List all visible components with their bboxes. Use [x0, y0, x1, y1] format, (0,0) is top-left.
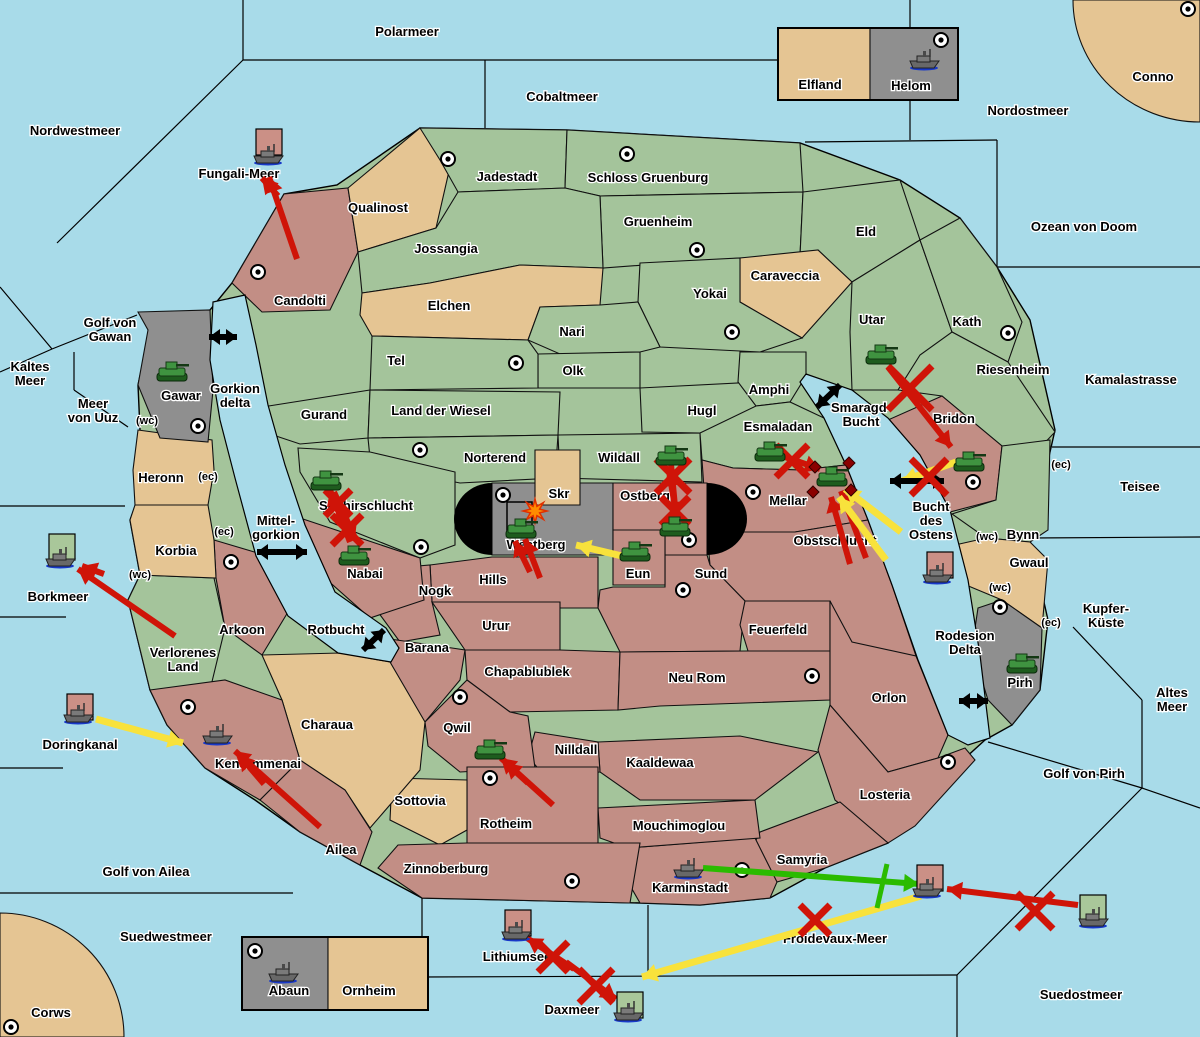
province-label-ailea: Ailea: [325, 842, 357, 857]
sea-label-suedostmeer: Suedostmeer: [1040, 987, 1122, 1002]
province-label-sund: Sund: [695, 566, 728, 581]
province-label-yokai: Yokai: [693, 286, 727, 301]
supply-center-tel: [509, 356, 523, 370]
province-label-corws: Corws: [31, 1005, 71, 1020]
supply-center-zinnoberburg: [565, 874, 579, 888]
fleet-unit-borkmeer[interactable]: [46, 534, 75, 569]
sea-label-daxmeer: Daxmeer: [545, 1002, 600, 1017]
sea-label-golf-von-gawan: Golf vonGawan: [84, 315, 137, 344]
province-label-samyria: Samyria: [777, 852, 828, 867]
supply-center-bridon: [966, 475, 980, 489]
fleet-unit-fungali-meer[interactable]: [254, 129, 283, 166]
supply-center-candolti: [251, 265, 265, 279]
province-label-land-der-wiesel: Land der Wiesel: [391, 403, 491, 418]
supply-center-yokai: [725, 325, 739, 339]
province-label-arkoon: Arkoon: [219, 622, 265, 637]
supply-center-mellar: [746, 485, 760, 499]
supply-center-qwil: [453, 690, 467, 704]
province-label-amphi: Amphi: [749, 382, 789, 397]
province-label-nilldall: Nilldall: [555, 742, 598, 757]
province-label-heronn: Heronn: [138, 470, 184, 485]
province-label-esmaladan: Esmaladan: [744, 419, 813, 434]
supply-center-rotheim: [483, 771, 497, 785]
sea-label-golf-von-pirh: Golf von Pirh: [1043, 766, 1125, 781]
province-nari[interactable]: [528, 302, 660, 354]
supply-center-saphirschlucht: [414, 540, 428, 554]
province-label-zinnoberburg: Zinnoberburg: [404, 861, 489, 876]
province-label-feuerfeld: Feuerfeld: [749, 622, 808, 637]
province-label-jossangia: Jossangia: [414, 241, 478, 256]
supply-center-pirh: [993, 600, 1007, 614]
supply-center-conno: [1181, 2, 1195, 16]
province-label-tel: Tel: [387, 353, 405, 368]
province-label-mellar: Mellar: [769, 493, 807, 508]
province-label-bynn: Bynn: [1007, 527, 1040, 542]
sea-label-altes-meer: AltesMeer: [1156, 685, 1188, 714]
sea-label-kupfer-kueste: Kupfer-Küste: [1083, 601, 1129, 630]
sea-label-rotbucht: Rotbucht: [307, 622, 365, 637]
province-label-eun: Eun: [626, 566, 651, 581]
game-map-root: PolarmeerNordwestmeerCobaltmeerNordostme…: [0, 0, 1200, 1037]
province-label-ornheim: Ornheim: [342, 983, 395, 998]
coast-marker: (ec): [1041, 617, 1061, 629]
sea-label-suedwestmeer: Suedwestmeer: [120, 929, 212, 944]
province-olk[interactable]: [538, 352, 640, 388]
province-label-elfland: Elfland: [798, 77, 841, 92]
province-label-olk: Olk: [563, 363, 585, 378]
province-label-urur: Urur: [482, 618, 509, 633]
sea-label-lithiumsee: Lithiumsee: [483, 949, 552, 964]
province-label-neu-rom: Neu Rom: [668, 670, 725, 685]
province-label-caraveccia: Caraveccia: [751, 268, 820, 283]
province-ornheim[interactable]: [328, 937, 428, 1010]
sea-label-doringkanal: Doringkanal: [42, 737, 117, 752]
supply-center-norterend: [413, 443, 427, 457]
sea-label-ozean-von-doom: Ozean von Doom: [1031, 219, 1137, 234]
supply-center-arkoon: [224, 555, 238, 569]
province-label-barana: Barana: [405, 640, 450, 655]
province-label-mouchimoglou: Mouchimoglou: [633, 818, 725, 833]
coast-marker: (ec): [198, 471, 218, 483]
province-label-gwaul: Gwaul: [1009, 555, 1048, 570]
coast-marker: (wc): [989, 582, 1011, 594]
province-label-nogk: Nogk: [419, 583, 452, 598]
province-label-charaua: Charaua: [301, 717, 354, 732]
explosion-marker: [523, 499, 547, 523]
supply-center-kentommenai: [181, 700, 195, 714]
supply-center-schloss-gruenburg: [620, 147, 634, 161]
sea-label-teisee: Teisee: [1120, 479, 1160, 494]
supply-center-jadestadt: [441, 152, 455, 166]
supply-center-helom: [934, 33, 948, 47]
province-label-sottovia: Sottovia: [394, 793, 446, 808]
province-label-helom: Helom: [891, 78, 931, 93]
supply-center-kath: [1001, 326, 1015, 340]
fleet-unit-daxmeer[interactable]: [614, 992, 643, 1023]
supply-center-westberg: [496, 488, 510, 502]
province-label-kaaldewaa: Kaaldewaa: [626, 755, 694, 770]
coast-marker: (wc): [976, 531, 998, 543]
province-label-chapablublek: Chapablublek: [484, 664, 570, 679]
province-label-conno: Conno: [1132, 69, 1173, 84]
fleet-unit-bucht-des-ostens[interactable]: [923, 552, 953, 585]
sea-label-kamalastrasse: Kamalastrasse: [1085, 372, 1177, 387]
sea-label-nordostmeer: Nordostmeer: [988, 103, 1069, 118]
province-label-karminstadt: Karminstadt: [652, 880, 729, 895]
province-label-gurand: Gurand: [301, 407, 347, 422]
fleet-unit-froidevaux-meer[interactable]: [913, 865, 943, 899]
map-canvas: PolarmeerNordwestmeerCobaltmeerNordostme…: [0, 0, 1200, 1037]
sea-label-borkmeer: Borkmeer: [28, 589, 89, 604]
fleet-unit-lithiumsee[interactable]: [502, 910, 531, 942]
coast-marker: (ec): [214, 526, 234, 538]
province-label-gruenheim: Gruenheim: [624, 214, 693, 229]
province-korbia[interactable]: [130, 505, 216, 578]
province-label-eld: Eld: [856, 224, 876, 239]
province-label-schloss-gruenburg: Schloss Gruenburg: [588, 170, 709, 185]
province-label-kath: Kath: [953, 314, 982, 329]
province-label-nabai: Nabai: [347, 566, 382, 581]
province-label-hills: Hills: [479, 572, 506, 587]
province-label-jadestadt: Jadestadt: [477, 169, 538, 184]
supply-center-corws: [4, 1020, 18, 1034]
coast-marker: (ec): [1051, 459, 1071, 471]
coast-marker: (wc): [129, 569, 151, 581]
province-label-candolti: Candolti: [274, 293, 326, 308]
province-label-riesenheim: Riesenheim: [977, 362, 1050, 377]
province-label-nari: Nari: [559, 324, 584, 339]
sea-label-cobaltmeer: Cobaltmeer: [526, 89, 598, 104]
supply-center-sund: [676, 583, 690, 597]
province-label-losteria: Losteria: [860, 787, 911, 802]
sea-label-mittelgorkion: Mittel-gorkion: [252, 513, 300, 542]
sea-label-kaltes-meer: KaltesMeer: [10, 359, 49, 388]
province-label-gawar: Gawar: [161, 388, 201, 403]
supply-center-gruenheim: [690, 243, 704, 257]
fleet-unit-doringkanal[interactable]: [64, 694, 93, 725]
province-label-orlon: Orlon: [872, 690, 907, 705]
supply-center-neu-rom: [805, 669, 819, 683]
supply-center-gawar: [191, 419, 205, 433]
supply-center-abaun: [248, 944, 262, 958]
province-label-skr: Skr: [549, 486, 570, 501]
province-label-wildall: Wildall: [598, 450, 640, 465]
province-label-norterend: Norterend: [464, 450, 526, 465]
sea-label-nordwestmeer: Nordwestmeer: [30, 123, 120, 138]
province-label-qualinost: Qualinost: [348, 200, 409, 215]
coast-marker: (wc): [136, 415, 158, 427]
province-label-utar: Utar: [859, 312, 885, 327]
province-label-hugl: Hugl: [688, 403, 717, 418]
province-label-abaun: Abaun: [269, 983, 310, 998]
supply-center-losteria: [941, 755, 955, 769]
province-label-pirh: Pirh: [1007, 675, 1032, 690]
province-label-qwil: Qwil: [443, 720, 470, 735]
sea-label-polarmeer: Polarmeer: [375, 24, 439, 39]
province-label-rotheim: Rotheim: [480, 816, 532, 831]
province-label-korbia: Korbia: [155, 543, 197, 558]
province-label-bridon: Bridon: [933, 411, 975, 426]
sea-label-golf-von-ailea: Golf von Ailea: [103, 864, 191, 879]
fleet-unit-suedostmeer[interactable]: [1079, 895, 1108, 929]
province-label-elchen: Elchen: [428, 298, 471, 313]
